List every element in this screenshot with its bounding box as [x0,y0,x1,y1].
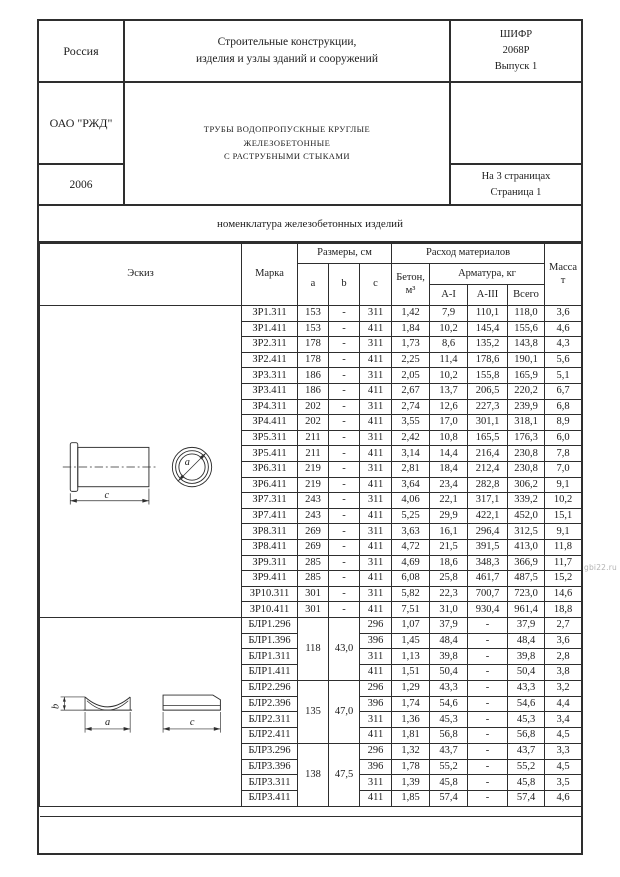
cell-rebar-aiii: - [468,775,508,791]
cell-rebar-ai: 7,9 [430,306,468,322]
cell-rebar-total: 55,2 [508,759,545,775]
cell-mark: БЛР1.311 [242,649,298,665]
nomenclature-band: номенклатура железобетонных изделий [39,206,581,243]
table-header: Эскиз Марка Размеры, см Расход материало… [40,244,582,306]
cell-c: 311 [360,493,392,509]
cell-mass: 3,6 [545,633,582,649]
cell-concrete: 1,85 [392,791,430,807]
cell-a: 118 [298,617,329,680]
cell-mark: БЛР3.296 [242,743,298,759]
cipher-cell: ШИФР 2068Р Выпуск 1 [451,21,581,83]
cell-concrete: 2,25 [392,352,430,368]
cell-mark: ЗР6.311 [242,461,298,477]
cell-c: 311 [360,712,392,728]
cell-rebar-aiii: - [468,665,508,681]
cell-concrete: 3,63 [392,524,430,540]
cell-rebar-ai: 57,4 [430,791,468,807]
cell-rebar-total: 143,8 [508,337,545,353]
cell-rebar-total: 190,1 [508,352,545,368]
cell-rebar-total: 155,6 [508,321,545,337]
cell-a: 269 [298,539,329,555]
cell-rebar-ai: 31,0 [430,602,468,618]
cell-rebar-ai: 39,8 [430,649,468,665]
cell-rebar-ai: 43,7 [430,743,468,759]
cell-mass: 4,6 [545,321,582,337]
cell-a: 202 [298,415,329,431]
cell-c: 411 [360,665,392,681]
table-row: c a ЗР1.311153-3111,427,9110,1118,03,6 [40,306,582,322]
saddle-block-sketch: b a c [40,618,241,806]
cell-a: 202 [298,399,329,415]
cell-concrete: 1,51 [392,665,430,681]
cell-mark: ЗР2.411 [242,352,298,368]
cell-mark: ЗР6.411 [242,477,298,493]
cell-mass: 4,5 [545,759,582,775]
cell-rebar-total: 43,3 [508,680,545,696]
cell-rebar-total: 165,9 [508,368,545,384]
cell-rebar-total: 487,5 [508,571,545,587]
year-cell: 2006 [39,165,125,206]
country-cell: Россия [39,21,125,83]
cell-mark: ЗР5.311 [242,430,298,446]
cell-rebar-total: 239,9 [508,399,545,415]
cell-mass: 3,3 [545,743,582,759]
cell-mark: БЛР3.411 [242,791,298,807]
cell-rebar-total: 50,4 [508,665,545,681]
cell-c: 396 [360,696,392,712]
cell-a: 153 [298,321,329,337]
svg-text:c: c [105,490,110,501]
cell-concrete: 2,67 [392,383,430,399]
cell-mass: 5,1 [545,368,582,384]
cell-b: 47,5 [329,743,360,806]
cell-rebar-aiii: - [468,712,508,728]
cell-rebar-aiii: 282,8 [468,477,508,493]
cell-mass: 3,5 [545,775,582,791]
cell-b: - [329,477,360,493]
country-label: Россия [63,44,98,59]
cell-mark: БЛР3.311 [242,775,298,791]
cell-b: - [329,306,360,322]
cell-b: - [329,555,360,571]
cell-b: - [329,415,360,431]
cell-c: 296 [360,617,392,633]
cell-rebar-total: 961,4 [508,602,545,618]
cell-concrete: 1,32 [392,743,430,759]
cell-rebar-aiii: 461,7 [468,571,508,587]
col-header-rebar: Арматура, кг [430,264,545,285]
cell-b: 47,0 [329,680,360,743]
cell-concrete: 2,05 [392,368,430,384]
cell-concrete: 4,69 [392,555,430,571]
cell-c: 311 [360,461,392,477]
cell-mass: 10,2 [545,493,582,509]
cell-mark: ЗР10.411 [242,602,298,618]
cell-rebar-aiii: 317,1 [468,493,508,509]
cell-c: 296 [360,680,392,696]
cell-concrete: 1,45 [392,633,430,649]
cell-mark: ЗР9.411 [242,571,298,587]
cell-b: - [329,493,360,509]
cell-mark: ЗР4.311 [242,399,298,415]
cell-a: 301 [298,586,329,602]
cell-mark: ЗР2.311 [242,337,298,353]
cell-concrete: 4,06 [392,493,430,509]
cell-rebar-ai: 37,9 [430,617,468,633]
cell-c: 311 [360,430,392,446]
cell-rebar-ai: 18,4 [430,461,468,477]
col-header-b: b [329,264,360,306]
pages-cell: На 3 страницах Страница 1 [451,165,581,206]
cell-a: 138 [298,743,329,806]
cell-rebar-ai: 50,4 [430,665,468,681]
cell-concrete: 1,07 [392,617,430,633]
cell-concrete: 7,51 [392,602,430,618]
cell-mark: БЛР2.396 [242,696,298,712]
year-label: 2006 [70,179,93,191]
cell-mark: ЗР4.411 [242,415,298,431]
cell-a: 186 [298,383,329,399]
cell-c: 411 [360,477,392,493]
cell-b: - [329,337,360,353]
cell-mark: БЛР2.411 [242,728,298,744]
cell-mark: ЗР10.311 [242,586,298,602]
cell-a: 178 [298,337,329,353]
cell-rebar-total: 230,8 [508,446,545,462]
col-header-materials: Расход материалов [392,244,545,264]
cell-rebar-aiii: - [468,633,508,649]
cell-concrete: 1,84 [392,321,430,337]
pipe-sketch-cell: c a [40,306,242,618]
cell-mark: ЗР1.311 [242,306,298,322]
cell-rebar-aiii: 227,3 [468,399,508,415]
cell-rebar-total: 230,8 [508,461,545,477]
cell-rebar-aiii: 155,8 [468,368,508,384]
cell-mass: 5,6 [545,352,582,368]
cell-mass: 9,1 [545,524,582,540]
cell-rebar-ai: 16,1 [430,524,468,540]
cell-rebar-total: 339,2 [508,493,545,509]
cell-rebar-total: 39,8 [508,649,545,665]
cell-mark: ЗР3.411 [242,383,298,399]
cell-b: - [329,524,360,540]
cell-mark: ЗР1.411 [242,321,298,337]
pipe-sketch: c a [40,306,241,617]
cell-rebar-aiii: - [468,617,508,633]
cell-c: 311 [360,306,392,322]
cell-b: 43,0 [329,617,360,680]
cell-rebar-total: 413,0 [508,539,545,555]
cell-c: 311 [360,524,392,540]
col-header-mass: Масса т [545,244,582,306]
organization-label: ОАО "РЖД" [50,116,113,131]
cell-rebar-ai: 11,4 [430,352,468,368]
cell-rebar-ai: 43,3 [430,680,468,696]
cell-mark: ЗР3.311 [242,368,298,384]
svg-text:a: a [105,717,110,728]
cell-concrete: 5,25 [392,508,430,524]
cell-rebar-total: 220,2 [508,383,545,399]
cell-b: - [329,399,360,415]
cell-rebar-ai: 10,2 [430,321,468,337]
cell-a: 301 [298,602,329,618]
cell-rebar-aiii: 212,4 [468,461,508,477]
cell-rebar-aiii: 145,4 [468,321,508,337]
cell-concrete: 6,08 [392,571,430,587]
col-header-rebar-ai: А-I [430,285,468,306]
cell-rebar-ai: 14,4 [430,446,468,462]
title-block: Россия Строительные конструкции, изделия… [39,21,581,206]
cell-mass: 7,0 [545,461,582,477]
cell-rebar-ai: 18,6 [430,555,468,571]
cell-rebar-aiii: - [468,728,508,744]
col-header-c: c [360,264,392,306]
cell-rebar-aiii: 422,1 [468,508,508,524]
cell-rebar-total: 43,7 [508,743,545,759]
cell-rebar-total: 118,0 [508,306,545,322]
cell-rebar-ai: 48,4 [430,633,468,649]
cell-mass: 15,2 [545,571,582,587]
cell-mass: 3,2 [545,680,582,696]
table-body: c a ЗР1.311153-3111,427,9110,1118,03,6ЗР… [40,306,582,817]
cell-mass: 6,8 [545,399,582,415]
cell-a: 243 [298,493,329,509]
cell-c: 411 [360,539,392,555]
cell-mark: БЛР1.296 [242,617,298,633]
cell-mark: ЗР7.311 [242,493,298,509]
cell-mass: 8,9 [545,415,582,431]
cell-rebar-aiii: - [468,759,508,775]
cell-a: 211 [298,446,329,462]
cell-concrete: 1,39 [392,775,430,791]
cell-mark: БЛР2.296 [242,680,298,696]
series-label: Строительные конструкции, изделия и узлы… [196,34,378,69]
cell-concrete: 2,74 [392,399,430,415]
watermark: gbi22.ru [584,563,617,572]
cell-b: - [329,321,360,337]
cell-rebar-total: 37,9 [508,617,545,633]
cell-c: 411 [360,352,392,368]
cell-c: 411 [360,728,392,744]
cell-a: 269 [298,524,329,540]
cell-b: - [329,446,360,462]
cell-c: 311 [360,337,392,353]
cell-mark: ЗР9.311 [242,555,298,571]
cell-rebar-aiii: 348,3 [468,555,508,571]
cell-rebar-ai: 22,3 [430,586,468,602]
cell-rebar-aiii: - [468,743,508,759]
cell-c: 311 [360,649,392,665]
document-frame: Россия Строительные конструкции, изделия… [37,19,583,855]
cell-mass: 15,1 [545,508,582,524]
cell-rebar-total: 45,8 [508,775,545,791]
cell-rebar-aiii: - [468,791,508,807]
cell-rebar-ai: 45,3 [430,712,468,728]
cell-mark: БЛР2.311 [242,712,298,728]
cell-a: 285 [298,555,329,571]
cell-concrete: 5,82 [392,586,430,602]
cell-mark: БЛР1.396 [242,633,298,649]
cell-rebar-ai: 10,8 [430,430,468,446]
table-row [40,806,582,816]
cell-concrete: 1,78 [392,759,430,775]
cell-mass: 3,8 [545,665,582,681]
col-header-rebar-total: Всего [508,285,545,306]
cell-rebar-aiii: 391,5 [468,539,508,555]
col-header-sketch: Эскиз [40,244,242,306]
cell-c: 311 [360,399,392,415]
cell-c: 411 [360,415,392,431]
cell-b: - [329,508,360,524]
cell-c: 311 [360,586,392,602]
cell-rebar-aiii: 216,4 [468,446,508,462]
cell-mark: ЗР7.411 [242,508,298,524]
cell-concrete: 2,81 [392,461,430,477]
cell-rebar-total: 45,3 [508,712,545,728]
cell-mass: 2,8 [545,649,582,665]
cell-concrete: 3,55 [392,415,430,431]
cell-mass: 4,6 [545,791,582,807]
cell-rebar-aiii: 178,6 [468,352,508,368]
cell-rebar-ai: 25,8 [430,571,468,587]
cell-b: - [329,586,360,602]
cell-mass: 2,7 [545,617,582,633]
cell-concrete: 2,42 [392,430,430,446]
cell-rebar-aiii: 165,5 [468,430,508,446]
cell-mass: 7,8 [545,446,582,462]
cell-mass: 11,8 [545,539,582,555]
cell-rebar-ai: 23,4 [430,477,468,493]
header-row: Эскиз Марка Размеры, см Расход материало… [40,244,582,264]
cell-rebar-aiii: 700,7 [468,586,508,602]
cell-c: 311 [360,775,392,791]
cell-mass: 14,6 [545,586,582,602]
cell-b: - [329,571,360,587]
cell-mass: 18,8 [545,602,582,618]
cell-rebar-ai: 10,2 [430,368,468,384]
pages-label: На 3 страницах Страница 1 [482,169,551,199]
bottom-band [40,806,582,816]
cell-concrete: 1,29 [392,680,430,696]
cell-c: 411 [360,446,392,462]
cell-concrete: 3,14 [392,446,430,462]
cell-rebar-aiii: 206,5 [468,383,508,399]
cell-rebar-total: 57,4 [508,791,545,807]
cell-a: 285 [298,571,329,587]
cell-rebar-total: 318,1 [508,415,545,431]
cell-rebar-aiii: - [468,696,508,712]
cell-concrete: 4,72 [392,539,430,555]
cell-concrete: 1,73 [392,337,430,353]
document-title-cell: ТРУБЫ ВОДОПРОПУСКНЫЕ КРУГЛЫЕ ЖЕЛЕЗОБЕТОН… [125,83,451,206]
cell-rebar-ai: 45,8 [430,775,468,791]
cell-rebar-ai: 55,2 [430,759,468,775]
cell-rebar-aiii: 296,4 [468,524,508,540]
cell-a: 243 [298,508,329,524]
nomenclature-title: номенклатура железобетонных изделий [217,218,403,230]
cell-rebar-aiii: 301,1 [468,415,508,431]
cell-mass: 11,7 [545,555,582,571]
cell-a: 186 [298,368,329,384]
cell-rebar-ai: 29,9 [430,508,468,524]
cell-rebar-total: 723,0 [508,586,545,602]
cell-rebar-ai: 8,6 [430,337,468,353]
cell-rebar-ai: 12,6 [430,399,468,415]
cell-rebar-total: 48,4 [508,633,545,649]
cell-rebar-ai: 13,7 [430,383,468,399]
cell-mark: БЛР3.396 [242,759,298,775]
cell-rebar-total: 56,8 [508,728,545,744]
cell-rebar-ai: 56,8 [430,728,468,744]
cipher-label: ШИФР 2068Р Выпуск 1 [495,27,538,74]
cell-c: 411 [360,791,392,807]
cell-b: - [329,602,360,618]
cell-rebar-ai: 22,1 [430,493,468,509]
empty-cell [451,83,581,165]
block-sketch-cell: b a c [40,617,242,806]
cell-rebar-ai: 17,0 [430,415,468,431]
cell-mark: ЗР5.411 [242,446,298,462]
cell-mass: 4,5 [545,728,582,744]
col-header-rebar-aiii: А-III [468,285,508,306]
cell-concrete: 1,42 [392,306,430,322]
cell-mass: 3,6 [545,306,582,322]
svg-text:c: c [190,717,195,728]
cell-rebar-total: 306,2 [508,477,545,493]
col-header-mark: Марка [242,244,298,306]
cell-concrete: 1,36 [392,712,430,728]
document-title: ТРУБЫ ВОДОПРОПУСКНЫЕ КРУГЛЫЕ ЖЕЛЕЗОБЕТОН… [204,123,370,164]
cell-mark: ЗР8.411 [242,539,298,555]
nomenclature-table: Эскиз Марка Размеры, см Расход материало… [39,243,582,817]
cell-a: 219 [298,477,329,493]
cell-mass: 9,1 [545,477,582,493]
cell-c: 411 [360,321,392,337]
cell-a: 153 [298,306,329,322]
cell-rebar-total: 366,9 [508,555,545,571]
cell-c: 396 [360,759,392,775]
cell-a: 135 [298,680,329,743]
col-header-concrete: Бетон, м³ [392,264,430,306]
cell-mass: 3,4 [545,712,582,728]
cell-mass: 4,4 [545,696,582,712]
cell-c: 411 [360,602,392,618]
cell-b: - [329,352,360,368]
organization-cell: ОАО "РЖД" [39,83,125,165]
cell-mark: ЗР8.311 [242,524,298,540]
cell-c: 311 [360,368,392,384]
cell-a: 211 [298,430,329,446]
svg-text:a: a [185,457,190,468]
cell-b: - [329,383,360,399]
cell-rebar-aiii: 135,2 [468,337,508,353]
cell-mass: 4,3 [545,337,582,353]
cell-a: 219 [298,461,329,477]
cell-rebar-ai: 21,5 [430,539,468,555]
cell-rebar-ai: 54,6 [430,696,468,712]
cell-mass: 6,7 [545,383,582,399]
cell-b: - [329,539,360,555]
cell-rebar-aiii: 930,4 [468,602,508,618]
cell-rebar-total: 452,0 [508,508,545,524]
cell-concrete: 1,13 [392,649,430,665]
cell-b: - [329,461,360,477]
cell-rebar-total: 176,3 [508,430,545,446]
cell-rebar-aiii: 110,1 [468,306,508,322]
cell-concrete: 1,74 [392,696,430,712]
cell-b: - [329,430,360,446]
cell-c: 311 [360,555,392,571]
